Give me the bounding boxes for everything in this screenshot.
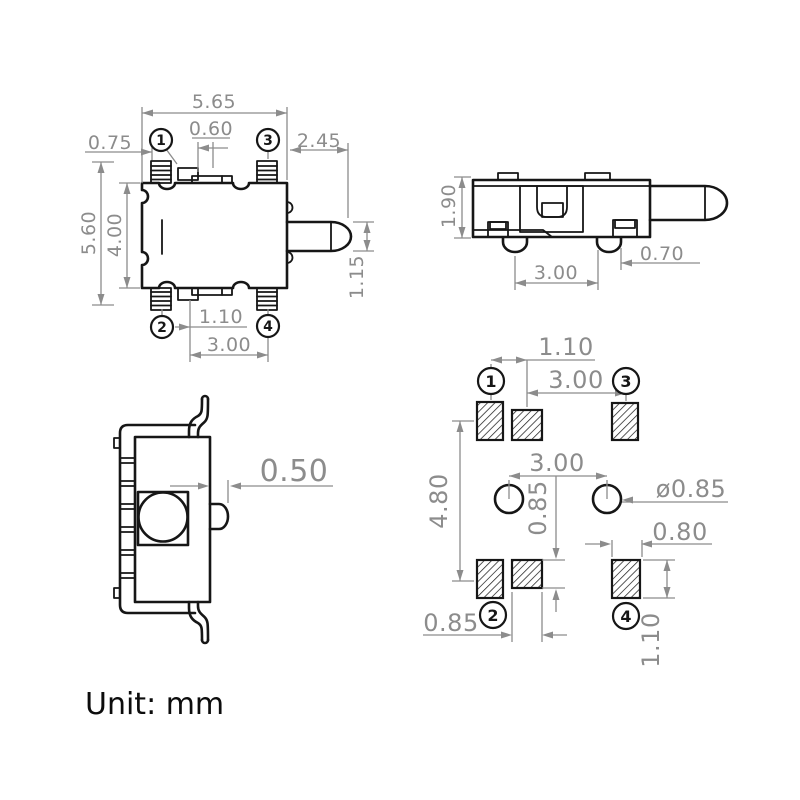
dim-land-pad-span: 3.00 [527,366,626,401]
terminal-pin-3 [257,161,277,183]
switch-body-outline [142,183,287,288]
front-left-nub-top [114,438,120,448]
pad-bottom-center [512,560,542,588]
dim-land-hole-diameter: ø0.85 [622,475,728,504]
dim-label: 1.10 [538,333,593,361]
dim-label: 4.80 [425,473,453,528]
dim-side-foot-span: 3.00 [515,250,598,290]
dim-label: 0.50 [260,454,329,489]
dim-label: 1.10 [637,612,665,667]
front-bottom-hook [189,602,208,643]
pad-3 [612,403,638,440]
dim-side-body-height: 1.90 [438,177,471,238]
dim-label: 3.00 [534,262,578,284]
bottom-tab-step [178,288,198,300]
dim-land-row-pitch: 4.80 [425,421,474,581]
dim-label: 0.60 [189,118,233,140]
dim-land-corner-pad-height: 1.10 [637,560,675,668]
front-top-hook [189,396,208,437]
top-tab-step [178,168,198,180]
dim-top-center-tab: 0.60 [189,118,233,172]
side-pin-block-left-inner [490,222,506,229]
front-right-tab [210,504,228,529]
dim-label: ø0.85 [656,475,727,503]
dim-label: 0.75 [88,132,132,154]
dim-label: 5.65 [192,91,236,113]
pad-1 [477,402,503,440]
terminal-pin-2 [151,288,171,310]
dim-label: 0.70 [640,243,684,265]
dim-label: 3.00 [207,334,251,356]
top-view: 5.65 0.75 0.60 2.45 5.60 [78,91,374,362]
plunger-top-view [287,222,351,251]
front-view: 0.50 [114,396,333,643]
dim-label: 1.15 [346,255,368,299]
front-body [135,437,210,602]
dim-top-body-height: 4.00 [104,183,140,288]
front-left-nub-bottom [114,588,120,598]
dim-side-foot-width: 0.70 [621,243,700,270]
technical-drawing-page: 5.65 0.75 0.60 2.45 5.60 [0,0,800,800]
dim-land-center-pad-height: 0.85 [524,476,565,612]
svg-text:2: 2 [487,606,498,625]
dim-top-plunger-length: 2.45 [290,130,348,218]
dim-label: 0.80 [652,518,707,546]
pad-2 [477,560,503,598]
side-view: 1.90 3.00 0.70 [438,173,727,290]
dim-label: 1.10 [199,306,243,328]
dim-label: 3.00 [529,449,584,477]
svg-text:3: 3 [263,133,273,149]
dim-label: 1.90 [438,184,460,228]
switch-dimension-drawing: 5.65 0.75 0.60 2.45 5.60 [0,0,800,800]
unit-note: Unit: mm [85,687,224,722]
dim-label: 2.45 [297,130,341,152]
dim-label: 4.00 [104,213,126,257]
side-center-inner-block [542,203,563,217]
dim-label: 5.60 [78,211,100,255]
dim-label: 3.00 [548,366,603,394]
side-foot-left [503,238,527,252]
pad-top-center [512,410,542,440]
front-button-circle [139,493,188,542]
svg-text:1: 1 [485,372,496,391]
land-pattern: 1.10 3.00 4.80 3.00 0.85 [423,333,728,668]
dim-label: 0.85 [524,480,552,535]
svg-text:3: 3 [620,372,631,391]
pad-4 [612,560,640,598]
dim-top-pin-span: 3.00 [190,334,268,362]
front-bracket [120,425,195,613]
svg-text:4: 4 [263,319,273,335]
terminal-pin-1 [151,161,171,183]
dim-land-corner-pad-width: 0.80 [585,518,712,557]
terminal-pin-4 [257,288,277,310]
svg-text:2: 2 [157,320,167,336]
plunger-side-view [650,186,727,220]
svg-text:4: 4 [620,607,631,626]
dim-label: 0.85 [423,609,478,637]
dim-front-tab-gap: 0.50 [170,454,333,503]
side-center-housing [520,186,583,232]
front-bracket-ticks [121,458,134,578]
side-foot-right [597,238,621,252]
side-pin-block-right-inner [615,220,635,228]
svg-text:1: 1 [156,133,166,149]
